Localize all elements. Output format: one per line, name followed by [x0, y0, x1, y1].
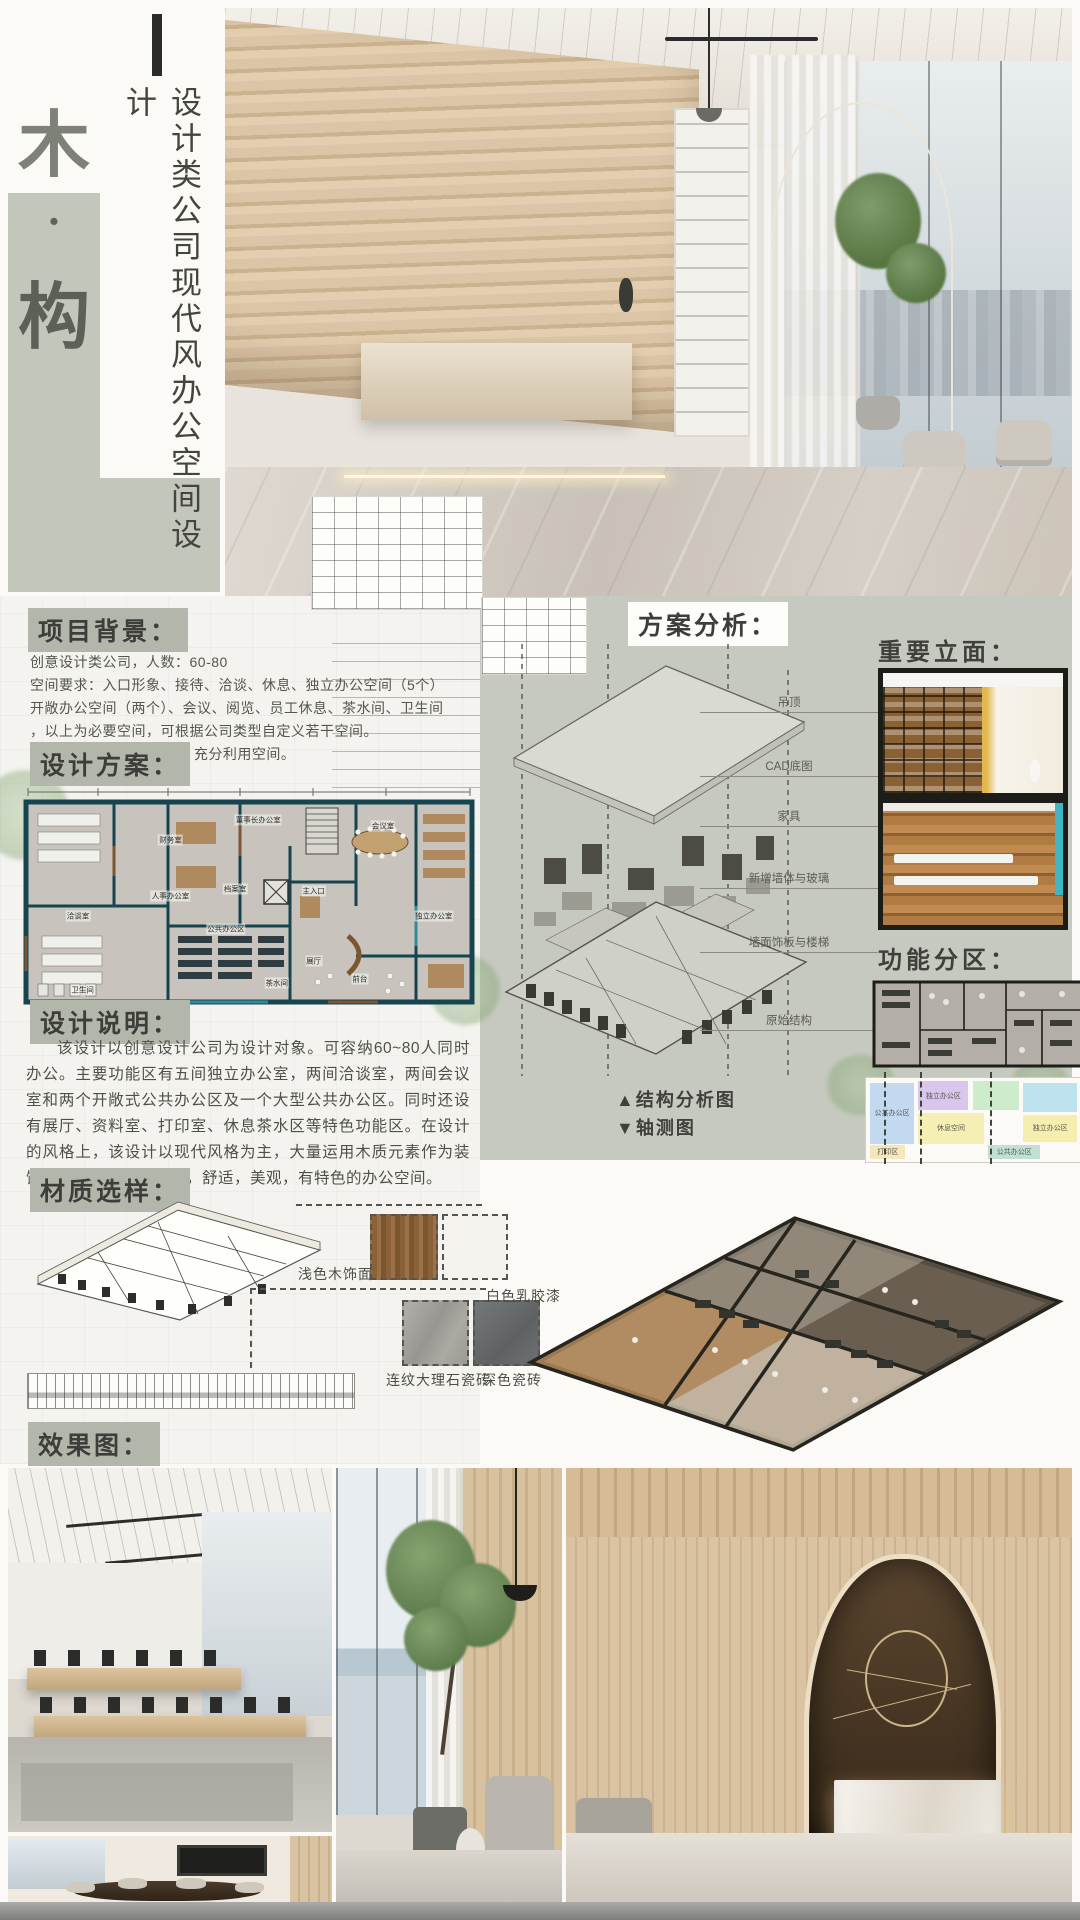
section-heading-key-elevations: 重要立面：	[878, 632, 1018, 667]
poster-subtitle-vertical: 设计类公司现代风办公空间设计	[154, 86, 206, 572]
material-connector-line	[250, 1288, 486, 1290]
materials-elevation-strip	[28, 1374, 354, 1408]
pendant-lamp-wire	[515, 1468, 517, 1585]
subtitle-accent-bar	[152, 14, 162, 76]
meeting-chair	[118, 1878, 147, 1889]
axon-label-ceiling: 吊顶	[700, 694, 878, 713]
axon-label-wall-finish-stairs: 墙面饰板与楼梯	[700, 934, 878, 953]
office-desk-row	[34, 1716, 306, 1738]
zone-block	[1023, 1083, 1078, 1112]
vase-icon	[1030, 759, 1040, 783]
room-label: 卫生间	[70, 984, 95, 995]
background-text-line: ，以上为必要空间，可根据公司类型自定义若干空间。	[30, 721, 378, 741]
teal-accent-strip	[1055, 803, 1063, 895]
room-label: 公共办公区	[206, 924, 246, 935]
room-label: 财务室	[158, 834, 183, 845]
zoning-plan-rendered	[872, 980, 1080, 1073]
bottom-gray-bar	[0, 1902, 1080, 1920]
axon-label-furniture: 家具	[700, 808, 878, 827]
room-label: 独立办公室	[414, 910, 454, 921]
elevation-bookshelf	[883, 687, 982, 793]
wood-slat-ceiling	[566, 1468, 1072, 1537]
section-heading-project-background: 项目背景：	[28, 608, 188, 652]
meeting-table	[73, 1881, 261, 1901]
room-label: 展厅	[305, 955, 322, 966]
background-text-line: 创意设计类公司，人数：60-80	[30, 652, 228, 672]
office-desk-row	[27, 1668, 241, 1690]
sculpture	[619, 278, 633, 312]
room-label: 前台	[351, 973, 368, 984]
marble-floor	[566, 1833, 1072, 1902]
material-swatch-marble-tile	[402, 1300, 469, 1366]
elevation-accent-wall	[982, 687, 1063, 793]
floor-plan: 财务室 人事办公室 董事长办公室 档案室 主入口 会议室 洽谈室 卫生间 公共办…	[18, 786, 480, 1010]
desk-monitors	[34, 1650, 235, 1666]
section-heading-functional-zoning: 功能分区：	[878, 940, 1018, 975]
meeting-chair	[235, 1882, 264, 1893]
material-connector-line	[250, 1288, 252, 1368]
room-label: 洽谈室	[66, 910, 91, 921]
caption-structure-analysis: ▲结构分析图	[616, 1086, 736, 1112]
desk-light-strip	[344, 475, 666, 478]
render-photo-lounge	[336, 1468, 562, 1902]
axon-label-original-structure: 原始结构	[700, 1012, 878, 1031]
tree-foliage	[404, 1607, 468, 1671]
elevation-ceiling-strip	[883, 673, 1063, 687]
display-shelf	[674, 108, 750, 437]
material-label-marble-tile: 连纹大理石瓷砖	[386, 1370, 491, 1390]
material-swatch-light-wood	[370, 1214, 438, 1280]
section-heading-design-plan: 设计方案：	[30, 742, 190, 786]
poster-title-char-wood: 木	[14, 86, 94, 191]
room-label: 会议室	[371, 821, 396, 832]
poster-title-char-structure: 构	[14, 258, 94, 363]
meeting-chair	[176, 1878, 205, 1889]
zone-block: 独立办公区	[1023, 1115, 1078, 1142]
axon-label-cad-base: CAD底图	[700, 758, 878, 777]
elevation-wood-slat-wall	[883, 803, 1063, 925]
ring-artwork	[865, 1630, 948, 1727]
indoor-plant	[886, 243, 946, 303]
elevation-image-bookshelf	[878, 668, 1068, 798]
pendant-lamp-wire	[708, 8, 710, 108]
wall-tv	[177, 1845, 267, 1876]
render-photo-meeting-room	[8, 1836, 332, 1902]
room-label: 档案室	[223, 884, 248, 895]
material-label-light-wood: 浅色木饰面	[298, 1264, 373, 1284]
render-photo-open-office	[8, 1468, 332, 1832]
zone-block: 休息空间	[918, 1113, 983, 1143]
birdseye-cutaway-render	[495, 1150, 1080, 1467]
zone-block: 独立办公区	[918, 1081, 968, 1110]
cad-plan-lines	[312, 497, 482, 609]
zone-block: 公共办公区	[870, 1083, 914, 1143]
room-label: 主入口	[301, 886, 326, 897]
axon-label-new-walls-glass: 新增墙体与玻璃	[700, 870, 878, 889]
lounge-chair	[996, 420, 1052, 466]
poster-title-dot: ·	[14, 196, 94, 247]
design-poster: 木 · 构 设计类公司现代风办公空间设计	[0, 0, 1080, 1920]
photo-window	[8, 1840, 105, 1889]
room-label: 人事办公室	[151, 890, 191, 901]
elevation-image-wood-slats	[878, 798, 1068, 930]
material-connector-line	[296, 1204, 482, 1206]
elevation-white-bar	[894, 876, 1038, 885]
room-label: 茶水间	[264, 978, 289, 989]
wood-panel-wall	[290, 1836, 332, 1902]
section-heading-renders: 效果图：	[28, 1422, 160, 1466]
reception-desk	[361, 343, 632, 419]
caption-axonometric: ▼轴测图	[616, 1114, 696, 1140]
title-sage-block	[8, 193, 100, 592]
materials-axon-model	[28, 1192, 328, 1327]
photo-floor	[336, 1850, 562, 1902]
meeting-chair	[66, 1882, 95, 1893]
plant-pot	[856, 396, 900, 430]
desk-monitors	[40, 1697, 293, 1713]
zone-block	[973, 1081, 1019, 1110]
track-light	[665, 37, 817, 41]
background-text-line: 空间要求：入口形象、接待、洽谈、休息、独立办公空间（5个）	[30, 675, 444, 695]
elevation-top-strip	[883, 803, 1063, 811]
cad-plan-thumbnail	[312, 497, 482, 609]
carpet	[21, 1763, 293, 1821]
background-text-line: 开敞办公空间（两个）、会议、阅览、员工休息、茶水间、卫生间	[30, 698, 444, 718]
elevation-white-bar	[894, 854, 1013, 863]
render-photo-reception-arch	[566, 1468, 1072, 1902]
room-label: 董事长办公室	[235, 814, 282, 825]
